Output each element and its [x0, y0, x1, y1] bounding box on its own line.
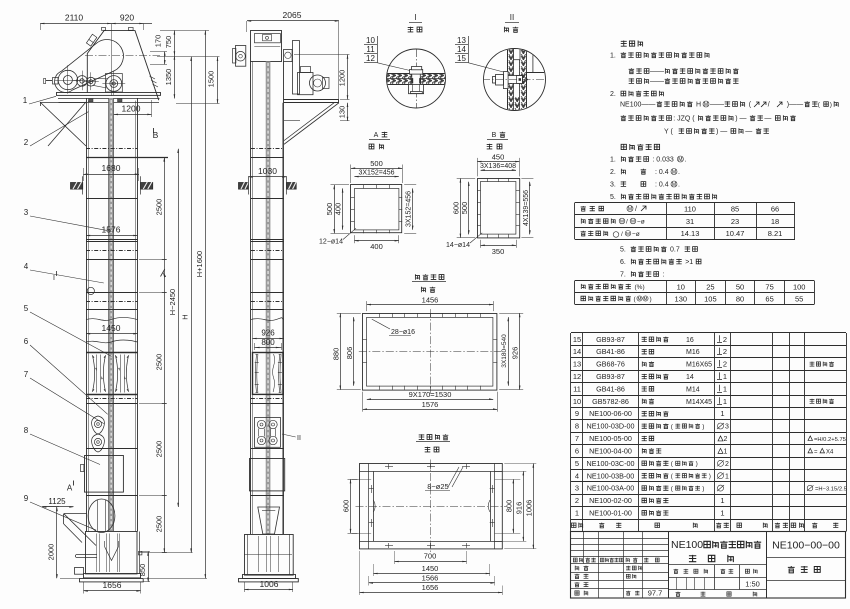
svg-text:600: 600 — [342, 500, 351, 513]
svg-text:85: 85 — [731, 205, 739, 214]
svg-text:400: 400 — [370, 242, 383, 251]
svg-text:1006: 1006 — [524, 500, 533, 517]
svg-text:H+1600: H+1600 — [195, 251, 204, 277]
svg-text:2000: 2000 — [47, 544, 56, 561]
svg-text:M14X45: M14X45 — [686, 399, 712, 406]
svg-text:M: M — [672, 169, 676, 175]
svg-text:10: 10 — [573, 397, 581, 406]
svg-text:500: 500 — [370, 159, 383, 168]
svg-text:15: 15 — [457, 54, 466, 63]
svg-text:2500: 2500 — [154, 199, 163, 216]
svg-text:NE100-05-00: NE100-05-00 — [589, 434, 632, 443]
svg-text:2500: 2500 — [154, 354, 163, 371]
svg-text:100: 100 — [793, 282, 806, 291]
svg-text:1576: 1576 — [422, 400, 439, 409]
svg-text:850: 850 — [138, 564, 147, 577]
svg-text:15: 15 — [573, 335, 581, 344]
svg-text:66: 66 — [771, 205, 779, 214]
svg-text:2110: 2110 — [65, 13, 84, 23]
svg-text:M: M — [672, 182, 676, 188]
svg-text:>1: >1 — [685, 259, 693, 266]
svg-text:NE100-03C-00: NE100-03C-00 — [587, 459, 635, 468]
svg-text:) —: ) — — [716, 129, 727, 136]
svg-text:)——: )—— — [787, 102, 803, 109]
svg-text:105: 105 — [704, 294, 717, 303]
svg-text:920: 920 — [120, 13, 134, 23]
svg-text:.: . — [678, 169, 680, 176]
svg-text:3X180=540: 3X180=540 — [501, 334, 508, 368]
svg-text:11: 11 — [366, 45, 375, 54]
svg-text:11: 11 — [573, 384, 581, 393]
svg-text:1200: 1200 — [122, 104, 141, 114]
svg-text:): ) — [709, 473, 711, 480]
svg-text:2: 2 — [723, 335, 727, 344]
svg-text:/: / — [768, 102, 770, 109]
svg-text:800: 800 — [504, 500, 513, 513]
svg-text:—: — — [764, 116, 771, 123]
svg-text:GB68-76: GB68-76 — [596, 360, 625, 369]
svg-text:450: 450 — [492, 153, 505, 162]
svg-text:I: I — [53, 275, 55, 282]
svg-text:M16: M16 — [686, 349, 700, 356]
svg-text:14.13: 14.13 — [681, 229, 700, 238]
svg-text:97.7: 97.7 — [648, 589, 663, 598]
svg-text:3: 3 — [725, 424, 729, 431]
svg-text:1656: 1656 — [103, 580, 122, 590]
svg-text:A: A — [374, 132, 379, 139]
svg-text:3X152=456: 3X152=456 — [406, 191, 413, 227]
svg-text:GB93-87: GB93-87 — [596, 335, 625, 344]
svg-text:H−2450: H−2450 — [168, 289, 177, 315]
svg-text:—: — — [745, 129, 752, 136]
svg-text:400: 400 — [334, 203, 343, 216]
svg-text:880: 880 — [331, 348, 340, 361]
svg-text:1: 1 — [723, 372, 727, 381]
svg-text:M: M — [678, 157, 682, 163]
svg-text:4X139=556: 4X139=556 — [523, 190, 530, 226]
svg-text:9: 9 — [24, 494, 29, 503]
svg-text:350: 350 — [492, 247, 505, 256]
svg-text:700: 700 — [424, 552, 437, 561]
svg-text:8.21: 8.21 — [768, 229, 783, 238]
svg-text:110: 110 — [684, 205, 696, 214]
svg-text:2065: 2065 — [283, 10, 302, 20]
svg-text:10: 10 — [366, 36, 375, 45]
svg-text:GB93-87: GB93-87 — [596, 372, 625, 381]
svg-text:B: B — [492, 132, 497, 139]
svg-text:25: 25 — [706, 282, 714, 291]
svg-text:5.: 5. — [620, 247, 626, 254]
svg-text:M: M — [704, 102, 708, 108]
svg-text:A: A — [67, 484, 73, 493]
svg-text:): ) — [650, 296, 652, 303]
svg-text:2: 2 — [723, 347, 727, 356]
svg-text:): ) — [702, 486, 704, 493]
svg-text:31: 31 — [686, 217, 694, 226]
svg-text:8−ø25: 8−ø25 — [427, 482, 448, 491]
svg-text:1566: 1566 — [422, 574, 439, 583]
svg-text:−ø: −ø — [632, 231, 640, 238]
svg-text:55: 55 — [795, 294, 803, 303]
svg-text:1200: 1200 — [338, 70, 347, 87]
svg-text:NE100-06-00: NE100-06-00 — [589, 409, 632, 418]
svg-text:6.: 6. — [620, 259, 626, 266]
svg-text:3: 3 — [575, 484, 579, 493]
svg-text:NE100-04-00: NE100-04-00 — [589, 447, 632, 456]
svg-text:2.: 2. — [610, 169, 616, 176]
svg-text:M: M — [628, 206, 632, 212]
svg-text:NE100-03B-00: NE100-03B-00 — [587, 471, 635, 480]
svg-text:10.47: 10.47 — [726, 229, 745, 238]
svg-text:NE100-03A-00: NE100-03A-00 — [587, 484, 635, 493]
svg-text:1: 1 — [575, 509, 579, 518]
svg-text:NE100-03D-00: NE100-03D-00 — [587, 422, 635, 431]
svg-text:28−ø16: 28−ø16 — [391, 329, 415, 336]
svg-text:2: 2 — [725, 461, 729, 468]
svg-text:NE100-02-00: NE100-02-00 — [589, 496, 632, 505]
svg-text:130: 130 — [675, 294, 688, 303]
svg-text:13: 13 — [573, 360, 581, 369]
svg-text:14: 14 — [573, 347, 581, 356]
svg-text:50: 50 — [736, 282, 744, 291]
svg-text:1500: 1500 — [207, 71, 216, 88]
svg-text:2: 2 — [24, 138, 29, 147]
svg-text:M: M — [644, 296, 648, 301]
svg-text:6: 6 — [575, 447, 579, 456]
svg-text:1.: 1. — [610, 53, 616, 60]
svg-text:GB41-86: GB41-86 — [596, 347, 625, 356]
svg-text:14: 14 — [686, 374, 694, 381]
svg-text:10: 10 — [677, 282, 685, 291]
svg-text:1.: 1. — [610, 157, 616, 164]
svg-text:80: 80 — [736, 294, 744, 303]
svg-text:1: 1 — [720, 509, 724, 518]
svg-text:I: I — [414, 13, 416, 22]
svg-text:1450: 1450 — [102, 323, 121, 333]
svg-text:1: 1 — [23, 96, 28, 105]
svg-text:4: 4 — [575, 471, 579, 480]
svg-text:/: / — [626, 219, 628, 226]
svg-text:14−ø14: 14−ø14 — [446, 242, 470, 249]
svg-text:X4: X4 — [826, 449, 834, 455]
svg-text:Y (: Y ( — [664, 129, 673, 136]
svg-text:GB41-86: GB41-86 — [596, 384, 625, 393]
svg-text:——: —— — [650, 79, 664, 86]
svg-text:14: 14 — [457, 45, 466, 54]
svg-text:NE100-01-00: NE100-01-00 — [589, 509, 632, 518]
svg-text:750: 750 — [164, 36, 173, 49]
svg-text:0.7: 0.7 — [670, 247, 680, 254]
svg-text:3: 3 — [24, 208, 29, 217]
svg-text:): ) — [702, 423, 704, 430]
svg-text:800: 800 — [261, 338, 275, 347]
svg-text:NE100−00−00: NE100−00−00 — [772, 540, 840, 552]
svg-text:2500: 2500 — [154, 441, 163, 458]
svg-text:.: . — [684, 157, 686, 164]
svg-text:.: . — [678, 182, 680, 189]
svg-text::: : — [662, 272, 664, 279]
svg-text:): ) — [830, 102, 832, 109]
svg-text:16: 16 — [686, 337, 694, 344]
svg-text:12: 12 — [366, 54, 375, 63]
svg-text:NE100——: NE100—— — [620, 102, 655, 109]
svg-text:13: 13 — [457, 36, 466, 45]
svg-text:M16X65: M16X65 — [686, 362, 712, 369]
svg-text:2.: 2. — [610, 91, 616, 98]
svg-text:=H/0.2+5.75: =H/0.2+5.75 — [814, 437, 846, 443]
svg-text:II: II — [297, 435, 301, 442]
svg-text:1456: 1456 — [422, 295, 439, 304]
svg-text:: JZQ (: : JZQ ( — [673, 116, 695, 123]
svg-text:NE100: NE100 — [671, 539, 703, 551]
svg-text:1680: 1680 — [102, 163, 121, 173]
svg-text:M14: M14 — [686, 386, 700, 393]
svg-text:——: —— — [710, 102, 724, 109]
svg-text:1: 1 — [723, 397, 727, 406]
svg-text:=: = — [814, 449, 818, 455]
svg-text:5: 5 — [24, 304, 29, 313]
svg-text:1:50: 1:50 — [745, 580, 760, 589]
svg-text:−ø: −ø — [637, 219, 645, 226]
svg-text:1: 1 — [723, 384, 727, 393]
svg-text:926: 926 — [511, 347, 520, 360]
svg-text:1030: 1030 — [258, 166, 277, 176]
svg-text:1006: 1006 — [260, 579, 279, 589]
svg-text:=H−3.15/2.5: =H−3.15/2.5 — [815, 487, 847, 493]
svg-text:1450: 1450 — [422, 564, 439, 573]
svg-text:75: 75 — [765, 282, 773, 291]
svg-text:GB5782-86: GB5782-86 — [592, 397, 629, 406]
svg-text:2: 2 — [724, 436, 728, 443]
svg-text:130: 130 — [338, 106, 347, 119]
svg-text:8: 8 — [24, 426, 29, 435]
svg-text:500: 500 — [460, 202, 469, 215]
svg-text:1656: 1656 — [422, 583, 439, 592]
svg-text:/: / — [635, 206, 637, 213]
svg-text:65: 65 — [765, 294, 773, 303]
svg-text:5: 5 — [575, 459, 579, 468]
svg-text:3.: 3. — [610, 182, 616, 189]
svg-text:926: 926 — [261, 329, 275, 338]
svg-text:): ) — [696, 461, 698, 468]
svg-text:6: 6 — [24, 337, 29, 346]
svg-text:4: 4 — [24, 262, 29, 271]
svg-text:M: M — [626, 231, 630, 237]
svg-text:806: 806 — [345, 347, 354, 360]
svg-text:3X136=408: 3X136=408 — [480, 163, 516, 170]
svg-text:1: 1 — [720, 409, 724, 418]
svg-text:3X152=456: 3X152=456 — [358, 170, 394, 177]
svg-text:——: —— — [650, 69, 664, 76]
svg-text:9: 9 — [575, 409, 579, 418]
svg-text:2: 2 — [575, 496, 579, 505]
svg-text:2500: 2500 — [154, 516, 163, 533]
svg-text:: 0.033: : 0.033 — [652, 157, 674, 164]
svg-text:8: 8 — [575, 422, 579, 431]
svg-text:M: M — [631, 219, 635, 225]
svg-text:) —: ) — — [735, 116, 746, 123]
svg-text:23: 23 — [731, 217, 739, 226]
svg-text:2: 2 — [723, 360, 727, 369]
svg-text:(%): (%) — [635, 284, 645, 291]
svg-text:1: 1 — [720, 496, 724, 505]
svg-text:9X170=1530: 9X170=1530 — [409, 390, 452, 399]
svg-text:7.: 7. — [620, 272, 626, 279]
svg-text:II: II — [510, 13, 514, 22]
svg-text:1350: 1350 — [164, 69, 173, 86]
svg-text:170: 170 — [154, 35, 163, 48]
svg-text:5.: 5. — [610, 194, 616, 201]
svg-text:1: 1 — [725, 473, 729, 480]
svg-text:M: M — [638, 296, 642, 301]
svg-text:916: 916 — [514, 502, 523, 515]
svg-text:12−ø14: 12−ø14 — [319, 239, 343, 246]
svg-text:1: 1 — [724, 449, 728, 456]
svg-text:18: 18 — [771, 217, 779, 226]
svg-text:: 0.4: : 0.4 — [655, 182, 669, 189]
svg-text:1125: 1125 — [48, 497, 66, 506]
svg-text:H: H — [696, 102, 701, 109]
svg-text:7: 7 — [575, 434, 579, 443]
svg-text:: 0.4: : 0.4 — [655, 169, 669, 176]
svg-text:H: H — [181, 314, 190, 319]
svg-text:/: / — [621, 231, 623, 238]
svg-text:M: M — [620, 219, 624, 225]
svg-text:7: 7 — [24, 370, 29, 379]
svg-text:12: 12 — [573, 372, 581, 381]
